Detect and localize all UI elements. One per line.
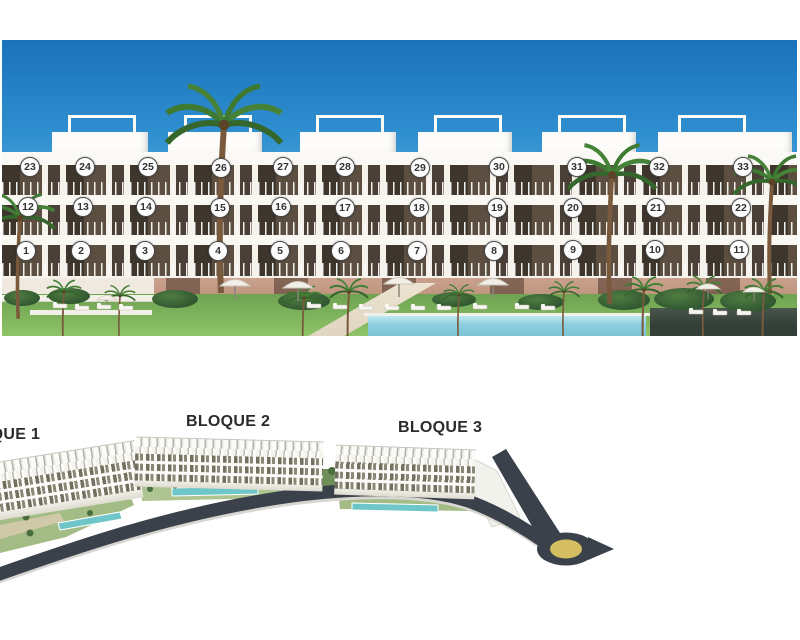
unit-marker-11[interactable]: 11 xyxy=(729,240,749,260)
unit-marker-31[interactable]: 31 xyxy=(567,157,587,177)
siteplan-render: BLOQUE 1 BLOQUE 2 BLOQUE 3 xyxy=(0,385,800,600)
unit-marker-28[interactable]: 28 xyxy=(335,157,355,177)
block-1-label: BLOQUE 1 xyxy=(0,426,40,444)
unit-marker-1[interactable]: 1 xyxy=(16,241,36,261)
bush xyxy=(4,290,40,306)
unit-marker-29[interactable]: 29 xyxy=(410,158,430,178)
window-row-floor1 xyxy=(2,245,797,276)
unit-marker-7[interactable]: 7 xyxy=(407,241,427,261)
unit-marker-13[interactable]: 13 xyxy=(73,197,93,217)
dark-planter-hedge xyxy=(650,308,797,336)
roundabout xyxy=(537,533,614,566)
unit-marker-18[interactable]: 18 xyxy=(409,198,429,218)
block-2-building xyxy=(134,437,323,492)
unit-marker-2[interactable]: 2 xyxy=(71,241,91,261)
unit-marker-20[interactable]: 20 xyxy=(563,198,583,218)
unit-marker-8[interactable]: 8 xyxy=(484,241,504,261)
bush xyxy=(278,292,330,310)
unit-marker-17[interactable]: 17 xyxy=(335,198,355,218)
window-row-floor2 xyxy=(2,205,797,235)
roundabout-center xyxy=(550,540,582,559)
unit-marker-14[interactable]: 14 xyxy=(136,197,156,217)
unit-marker-24[interactable]: 24 xyxy=(75,157,95,177)
unit-marker-6[interactable]: 6 xyxy=(331,241,351,261)
unit-marker-30[interactable]: 30 xyxy=(489,157,509,177)
parapet xyxy=(2,152,797,166)
unit-marker-22[interactable]: 22 xyxy=(731,198,751,218)
unit-marker-23[interactable]: 23 xyxy=(20,157,40,177)
bush xyxy=(48,288,90,304)
unit-marker-10[interactable]: 10 xyxy=(645,240,665,260)
block-2-label: BLOQUE 2 xyxy=(186,413,270,431)
block-3-building xyxy=(334,445,476,500)
unit-marker-4[interactable]: 4 xyxy=(208,241,228,261)
unit-marker-33[interactable]: 33 xyxy=(733,157,753,177)
unit-marker-27[interactable]: 27 xyxy=(273,157,293,177)
unit-marker-15[interactable]: 15 xyxy=(210,198,230,218)
unit-marker-5[interactable]: 5 xyxy=(270,241,290,261)
unit-marker-32[interactable]: 32 xyxy=(649,157,669,177)
bush xyxy=(654,288,714,310)
site-pool xyxy=(352,503,438,512)
bush xyxy=(432,292,476,307)
unit-marker-12[interactable]: 12 xyxy=(18,197,38,217)
bush xyxy=(518,294,564,310)
unit-marker-16[interactable]: 16 xyxy=(271,197,291,217)
unit-marker-26[interactable]: 26 xyxy=(211,158,231,178)
bush xyxy=(152,290,198,308)
page: 23 24 25 26 27 28 29 30 31 32 33 12 13 1… xyxy=(0,0,800,640)
unit-marker-21[interactable]: 21 xyxy=(646,198,666,218)
unit-marker-3[interactable]: 3 xyxy=(135,241,155,261)
planter-wall xyxy=(30,310,152,315)
unit-marker-9[interactable]: 9 xyxy=(563,240,583,260)
facade-render: 23 24 25 26 27 28 29 30 31 32 33 12 13 1… xyxy=(2,40,797,336)
unit-marker-25[interactable]: 25 xyxy=(138,157,158,177)
unit-marker-19[interactable]: 19 xyxy=(487,198,507,218)
block-3-label: BLOQUE 3 xyxy=(398,419,482,437)
window-row-floor3 xyxy=(2,165,797,195)
bush xyxy=(598,290,650,310)
bush xyxy=(720,290,776,312)
swimming-pool xyxy=(368,316,646,336)
